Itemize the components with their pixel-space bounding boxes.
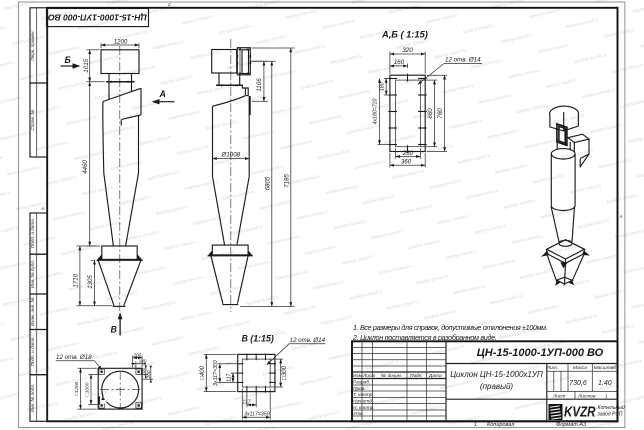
svg-text:Масса: Масса [573, 365, 588, 371]
svg-text:Подп.: Подп. [410, 373, 423, 379]
svg-text:4460: 4460 [82, 160, 89, 174]
svg-text:12 отв. Ø14: 12 отв. Ø14 [290, 337, 326, 344]
svg-text:117: 117 [242, 399, 251, 405]
svg-text:200: 200 [146, 370, 151, 379]
svg-text:260: 260 [402, 150, 414, 157]
svg-text:Дата: Дата [428, 373, 442, 379]
svg-text:1. Все размеры для справок, до: 1. Все размеры для справок, допустимые о… [353, 323, 548, 332]
svg-text:3х117=350: 3х117=350 [213, 360, 219, 386]
svg-text:Копировал: Копировал [487, 422, 514, 428]
svg-text:Справ. №: Справ. № [30, 110, 35, 131]
svg-text:117: 117 [226, 373, 232, 382]
svg-text:Котельный: Котельный [598, 404, 625, 411]
svg-text:Инв. № подл.: Инв. № подл. [30, 384, 35, 413]
svg-text:160: 160 [394, 59, 405, 66]
svg-text:Т. контр.: Т. контр. [353, 392, 374, 398]
svg-text:Перв. примен.: Перв. примен. [30, 30, 35, 61]
svg-text:KVZR: KVZR [564, 404, 596, 421]
svg-text:1106: 1106 [256, 78, 263, 92]
svg-text:1: 1 [474, 422, 477, 428]
svg-text:В (1:15): В (1:15) [242, 334, 274, 344]
svg-text:Ø1008: Ø1008 [221, 151, 241, 158]
svg-text:Подп. и дата: Подп. и дата [30, 337, 35, 366]
svg-text:200: 200 [133, 352, 142, 357]
svg-text:360: 360 [401, 159, 412, 166]
svg-text:А: А [41, 206, 45, 211]
svg-text:Лит.: Лит. [546, 365, 558, 371]
svg-text:□300: □300 [281, 365, 288, 380]
svg-text:4х180=720: 4х180=720 [373, 98, 379, 124]
svg-text:ЦН-15-1000-1УП-000 ВО: ЦН-15-1000-1УП-000 ВО [477, 347, 604, 359]
svg-text:□1206: □1206 [74, 382, 80, 396]
svg-text:1:40: 1:40 [598, 380, 612, 387]
svg-text:□400: □400 [199, 365, 206, 380]
svg-text:Лист: Лист [552, 393, 565, 399]
svg-text:1200: 1200 [114, 38, 128, 45]
svg-text:Разраб.: Разраб. [353, 380, 370, 386]
svg-text:180: 180 [379, 82, 385, 91]
svg-text:ЦН-15-1000-1УП-000 ВО: ЦН-15-1000-1УП-000 ВО [48, 13, 147, 23]
svg-text:12 отв. Ø14: 12 отв. Ø14 [445, 57, 481, 64]
svg-text:7185: 7185 [283, 174, 290, 188]
svg-text:1305: 1305 [87, 275, 94, 289]
svg-text:А,Б ( 1:15): А,Б ( 1:15) [381, 30, 428, 40]
svg-text:Утв.: Утв. [353, 411, 364, 417]
svg-text:Изм: Изм [353, 373, 363, 379]
svg-text:Б: Б [65, 55, 71, 65]
svg-text:140: 140 [139, 359, 147, 364]
svg-text:Инв. № дубл.: Инв. № дубл. [30, 260, 35, 288]
svg-text:Масштаб: Масштаб [594, 365, 617, 371]
svg-text:Подп. и дата: Подп. и дата [30, 219, 35, 248]
svg-text:320: 320 [402, 47, 413, 54]
svg-text:Формат А3: Формат А3 [556, 422, 587, 428]
svg-text:А: А [619, 214, 623, 219]
svg-text:Н. контр.: Н. контр. [353, 405, 375, 411]
svg-text:№ докум.: № докум. [381, 373, 402, 379]
svg-text:1710: 1710 [72, 273, 79, 287]
svg-text:завод РЭП: завод РЭП [597, 412, 623, 418]
svg-text:1015: 1015 [83, 58, 90, 72]
svg-text:760: 760 [437, 108, 444, 119]
svg-text:730,6: 730,6 [569, 380, 587, 387]
svg-text:Листов: Листов [577, 393, 596, 399]
svg-text:Нач.отд.: Нач.отд. [353, 398, 373, 404]
svg-text:Взам. инв. №: Взам. инв. № [30, 297, 35, 325]
svg-text:Лист: Лист [362, 373, 375, 379]
svg-text:1: 1 [605, 393, 608, 399]
svg-text:Пров.: Пров. [353, 386, 366, 392]
svg-text:12 отв. Ø18: 12 отв. Ø18 [56, 354, 92, 361]
svg-text:(правый): (правый) [480, 382, 513, 391]
svg-text:Циклон ЦН-15-1000х1УП: Циклон ЦН-15-1000х1УП [450, 370, 543, 379]
svg-text:3х117=350: 3х117=350 [244, 412, 270, 418]
svg-text:2: 2 [167, 2, 171, 7]
svg-text:660: 660 [427, 108, 434, 119]
svg-text:А: А [159, 89, 166, 99]
svg-text:В: В [111, 325, 118, 335]
svg-text:□1000: □1000 [85, 382, 91, 396]
svg-text:6805: 6805 [264, 176, 271, 190]
